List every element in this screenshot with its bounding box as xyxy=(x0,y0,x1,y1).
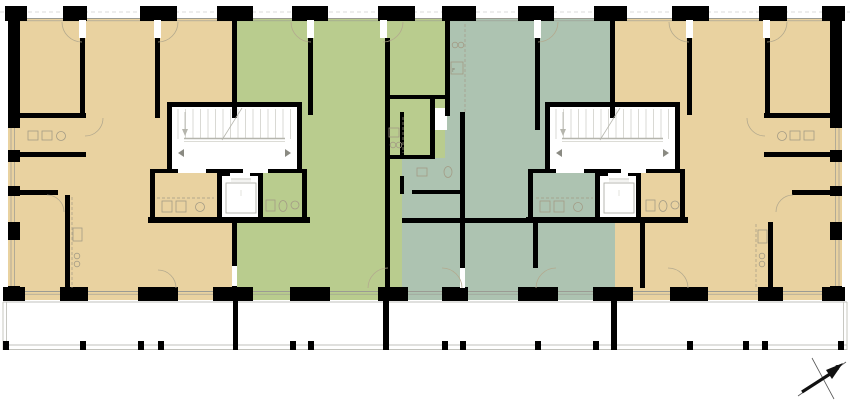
wall xyxy=(445,20,450,116)
wall-pier-bottom xyxy=(822,287,845,301)
wall xyxy=(545,102,680,107)
wall-pier-top xyxy=(378,6,415,21)
balcony-post xyxy=(138,341,144,350)
door-opening xyxy=(763,20,770,38)
wall xyxy=(258,176,263,217)
elevator-shaft-left xyxy=(222,176,260,218)
wall-pier-bottom xyxy=(3,287,25,301)
wall xyxy=(545,107,550,169)
wall xyxy=(595,176,600,217)
wall xyxy=(765,38,770,118)
balcony-post xyxy=(3,341,9,350)
wall-pier-top xyxy=(672,6,709,21)
wall-pier-top xyxy=(594,6,627,21)
wall xyxy=(155,38,160,118)
wall-pier-top xyxy=(63,6,87,21)
balcony-post xyxy=(290,341,296,350)
wall xyxy=(8,152,86,157)
wall xyxy=(764,113,842,118)
wall xyxy=(402,218,539,223)
north-arrow-icon: z xyxy=(798,358,846,399)
wall-pier-bottom xyxy=(758,287,783,301)
wall xyxy=(768,222,773,288)
balcony-divider-wall xyxy=(383,300,389,350)
balcony-post xyxy=(838,341,844,350)
unit-2-zone-ext xyxy=(402,18,445,158)
wall-pier-bottom xyxy=(378,287,408,301)
wall xyxy=(636,176,641,217)
door-opening xyxy=(556,169,584,173)
wall xyxy=(792,190,842,195)
wall-pier-bottom xyxy=(290,287,330,301)
wall-pier-bottom xyxy=(138,287,178,301)
wall xyxy=(8,113,86,118)
wall-pier-bottom xyxy=(213,287,253,301)
wall xyxy=(8,222,20,240)
balcony-post xyxy=(535,341,541,350)
door-opening xyxy=(79,20,86,38)
door-opening xyxy=(686,20,693,38)
wall xyxy=(302,173,307,222)
door-opening xyxy=(534,20,541,38)
wall xyxy=(385,38,390,290)
wall-pier-top xyxy=(217,6,253,21)
balcony-post xyxy=(762,341,768,350)
elevator-shaft-right xyxy=(600,176,638,218)
balcony-post xyxy=(80,341,86,350)
kitchen-label: F xyxy=(452,68,455,74)
wall xyxy=(385,155,435,159)
wall xyxy=(430,95,435,158)
floor-plan-page: F z xyxy=(0,0,850,405)
wall xyxy=(412,190,464,194)
balcony-post xyxy=(687,341,693,350)
wall xyxy=(167,102,302,107)
wall-pier-bottom xyxy=(60,287,88,301)
wall xyxy=(80,38,85,115)
wall-pier-top xyxy=(822,6,845,21)
wall xyxy=(528,173,533,222)
balcony-divider-wall xyxy=(611,300,617,350)
wall-pier-top xyxy=(759,6,787,21)
door-opening xyxy=(243,169,268,173)
wall xyxy=(535,38,540,130)
wall xyxy=(400,176,404,194)
door-opening xyxy=(307,20,314,38)
wall xyxy=(297,107,302,169)
wall xyxy=(65,195,70,288)
wall xyxy=(764,152,842,157)
wall xyxy=(8,190,58,195)
wall xyxy=(148,217,310,223)
balcony-post xyxy=(308,341,314,350)
wall xyxy=(640,223,645,288)
door-opening xyxy=(608,173,628,176)
wall xyxy=(675,107,680,169)
wall xyxy=(400,112,404,158)
door-opening xyxy=(232,266,237,286)
balcony-post xyxy=(460,341,466,350)
wall-pier-bottom xyxy=(442,287,468,301)
wall xyxy=(150,169,307,173)
wall xyxy=(150,173,155,222)
wall-pier-bottom xyxy=(670,287,708,301)
wall xyxy=(533,223,538,268)
wall-pier-top xyxy=(442,6,476,21)
balcony-post xyxy=(593,341,599,350)
door-opening xyxy=(154,20,161,38)
wall xyxy=(680,173,685,222)
door-opening xyxy=(621,169,646,173)
door-opening xyxy=(460,268,465,288)
wall-pier-bottom xyxy=(518,287,558,301)
wall xyxy=(830,222,842,240)
wall-pier-top xyxy=(140,6,177,21)
wall xyxy=(308,38,313,115)
wall xyxy=(460,112,465,270)
wall xyxy=(167,107,172,169)
wall xyxy=(528,169,685,173)
wall-pier-top xyxy=(5,6,27,21)
balcony-post xyxy=(158,341,164,350)
door-opening xyxy=(380,20,387,38)
wall xyxy=(8,20,20,128)
wall xyxy=(687,38,692,115)
wall xyxy=(217,176,222,217)
door-opening xyxy=(230,173,250,176)
balcony-post xyxy=(743,341,749,350)
wall xyxy=(526,217,688,223)
balcony-divider-wall xyxy=(233,300,238,350)
wall-pier-top xyxy=(518,6,554,21)
balcony-post xyxy=(442,341,448,350)
wall xyxy=(385,95,447,99)
wall-pier-bottom xyxy=(593,287,633,301)
floor-plan-canvas: F z xyxy=(0,0,850,405)
door-opening xyxy=(178,169,206,173)
wall xyxy=(830,20,842,128)
balcony-layer xyxy=(3,300,847,350)
wall-pier-top xyxy=(292,6,328,21)
